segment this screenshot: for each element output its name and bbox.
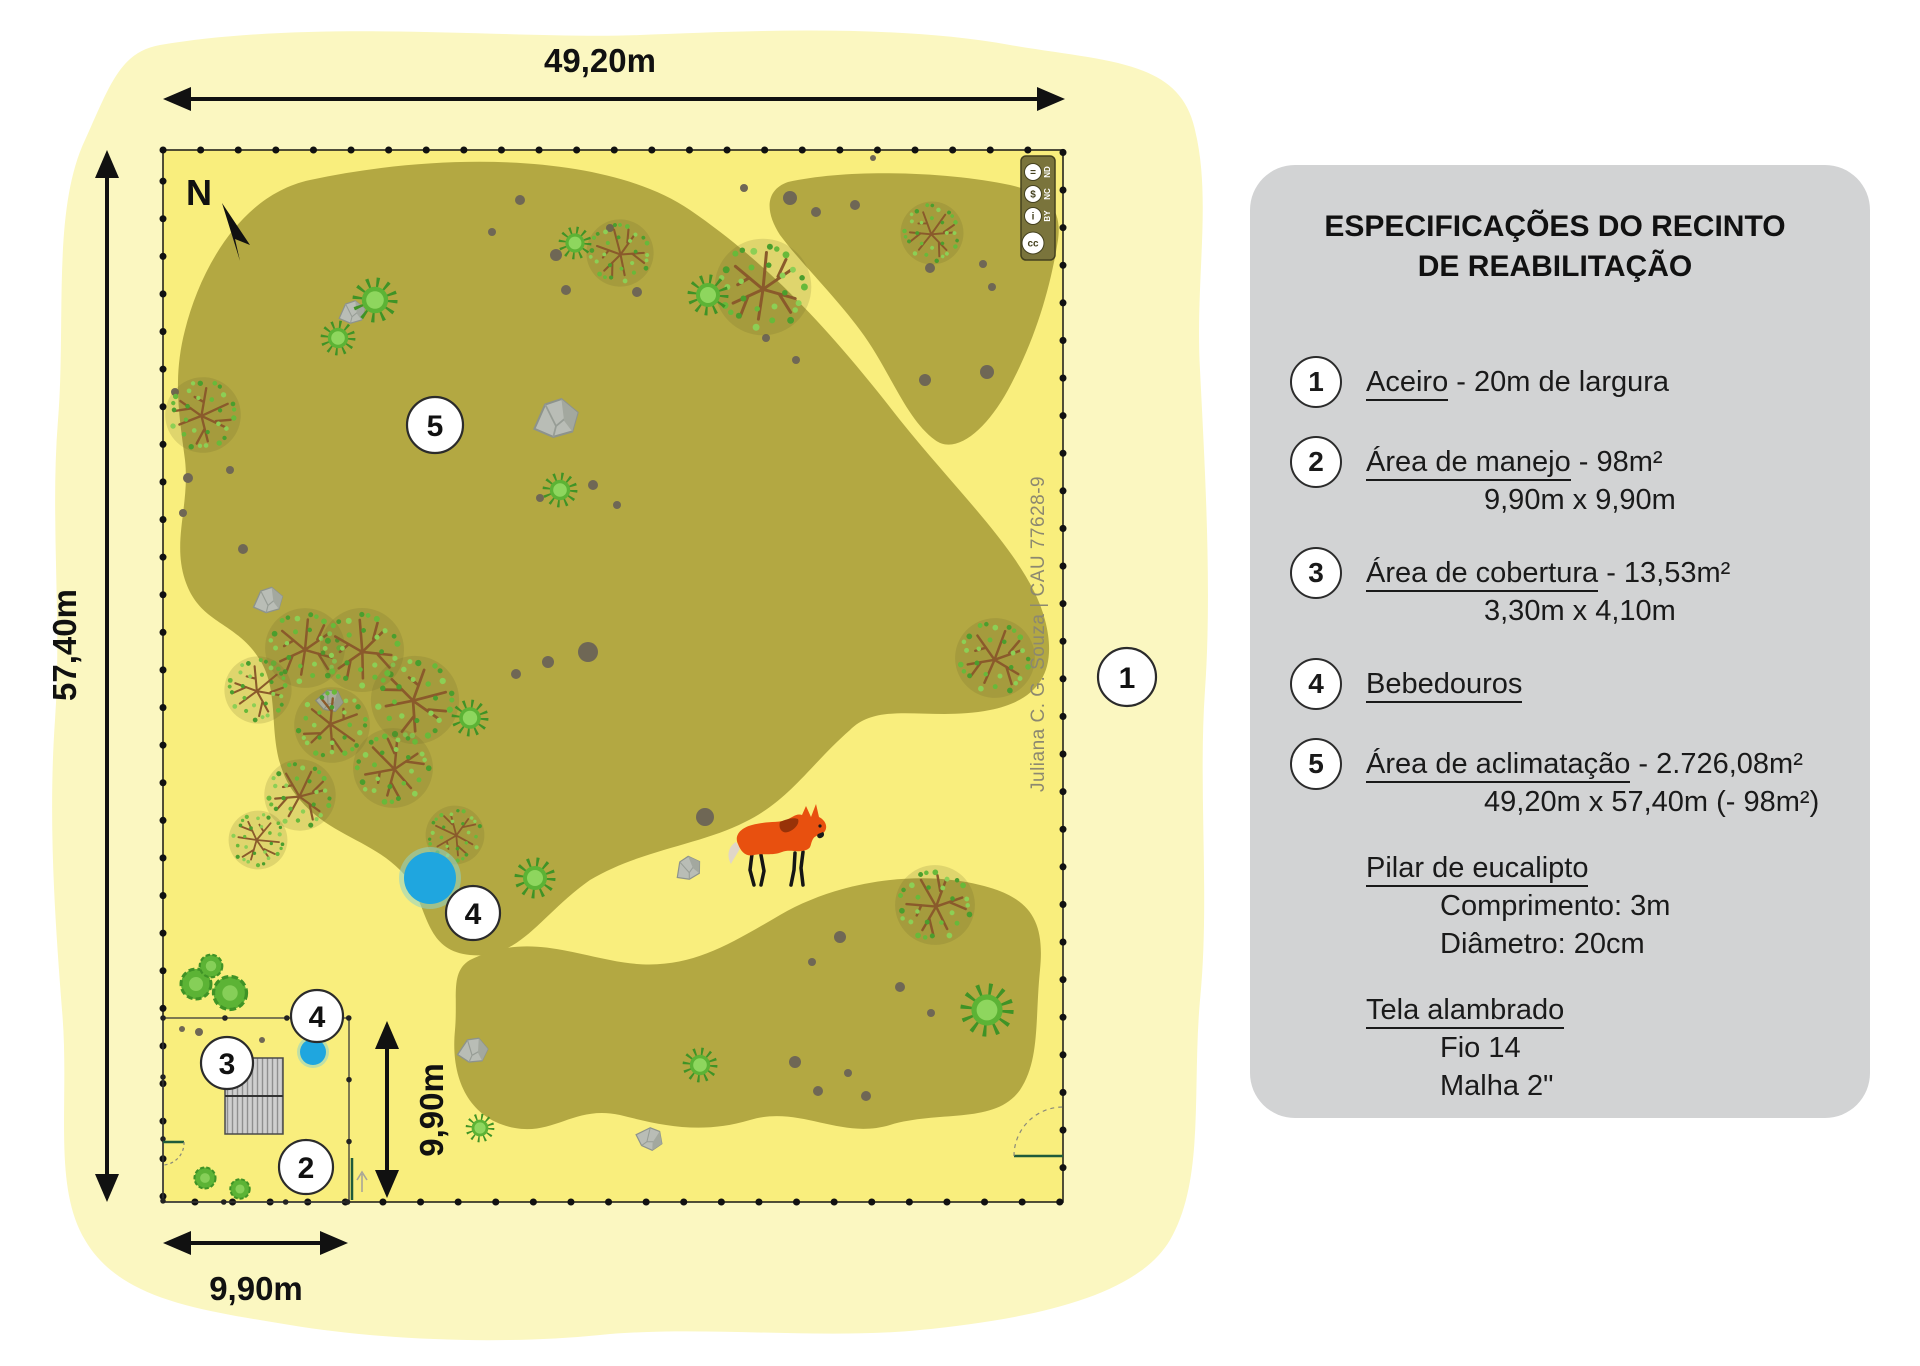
panel-title-line1: ESPECIFICAÇÕES DO RECINTO: [1266, 207, 1844, 247]
svg-text:4: 4: [465, 898, 482, 931]
spec-item-cobertura: 3 Área de cobertura - 13,53m² 3,30m x 4,…: [1266, 547, 1844, 630]
note-subline: Malha 2": [1440, 1067, 1844, 1105]
svg-text:NC: NC: [1043, 188, 1052, 200]
item-rest: - 20m de largura: [1448, 366, 1669, 398]
panel-title-line2: DE REABILITAÇÃO: [1266, 247, 1844, 287]
spec-item-manejo: 2 Área de manejo - 98m² 9,90m x 9,90m: [1266, 436, 1844, 519]
item-rest: - 98m²: [1571, 446, 1663, 478]
panel-title: ESPECIFICAÇÕES DO RECINTO DE REABILITAÇÃ…: [1266, 207, 1844, 286]
note-subline: Comprimento: 3m: [1440, 887, 1844, 925]
item-number-badge: 3: [1290, 547, 1342, 599]
svg-text:9,90m: 9,90m: [413, 1063, 450, 1157]
item-term: Área de manejo: [1366, 446, 1571, 481]
site-plan-page: 5 4 1 4 3 2 49,20m 57,40m 9,90m: [0, 0, 1920, 1366]
item-rest: - 2.726,08m²: [1630, 748, 1802, 780]
item-term: Bebedouros: [1366, 668, 1522, 703]
item-text: Área de aclimatação - 2.726,08m² 49,20m …: [1366, 738, 1819, 821]
map-marker-cobertura: 3: [201, 1037, 253, 1089]
item-text: Área de manejo - 98m² 9,90m x 9,90m: [1366, 436, 1676, 519]
item-text: Bebedouros: [1366, 658, 1522, 703]
svg-text:1: 1: [1119, 662, 1136, 695]
spec-item-bebedouros: 4 Bebedouros: [1266, 658, 1844, 710]
spec-panel: ESPECIFICAÇÕES DO RECINTO DE REABILITAÇÃ…: [1250, 165, 1870, 1118]
item-subline: 9,90m x 9,90m: [1484, 481, 1676, 519]
map-marker-aceiro: 1: [1098, 648, 1156, 706]
item-term: Área de aclimatação: [1366, 748, 1630, 783]
item-rest: - 13,53m²: [1598, 557, 1730, 589]
svg-text:BY: BY: [1043, 210, 1052, 222]
svg-text:9,90m: 9,90m: [209, 1270, 303, 1307]
note-term: Pilar de eucalipto: [1366, 852, 1588, 887]
enclosure-map: 5 4 1 4 3 2 49,20m 57,40m 9,90m: [0, 0, 1250, 1366]
spec-item-aceiro: 1 Aceiro - 20m de largura: [1266, 356, 1844, 408]
svg-text:3: 3: [219, 1048, 236, 1081]
item-number-badge: 4: [1290, 658, 1342, 710]
item-text: Aceiro - 20m de largura: [1366, 356, 1669, 401]
item-subline: 49,20m x 57,40m (- 98m²): [1484, 783, 1819, 821]
author-credit: Juliana C. G. Souza | CAU 77628-9: [1028, 476, 1049, 792]
note-subline: Diâmetro: 20cm: [1440, 925, 1844, 963]
note-subline: Fio 14: [1440, 1029, 1844, 1067]
svg-text:N: N: [186, 172, 212, 213]
item-number-badge: 5: [1290, 738, 1342, 790]
item-term: Área de cobertura: [1366, 557, 1598, 592]
spec-items: 1 Aceiro - 20m de largura 2 Área de mane…: [1266, 356, 1844, 1105]
svg-text:57,40m: 57,40m: [46, 589, 83, 701]
svg-text:$: $: [1030, 190, 1036, 201]
svg-text:2: 2: [298, 1152, 315, 1185]
map-marker-bebedouro-pond: 4: [446, 886, 500, 940]
spec-item-aclimatacao: 5 Área de aclimatação - 2.726,08m² 49,20…: [1266, 738, 1844, 821]
note-term: Tela alambrado: [1366, 994, 1564, 1029]
note-pilar: Pilar de eucalipto Comprimento: 3m Diâme…: [1366, 849, 1844, 963]
item-subline: 3,30m x 4,10m: [1484, 592, 1730, 630]
item-text: Área de cobertura - 13,53m² 3,30m x 4,10…: [1366, 547, 1730, 630]
item-number-badge: 1: [1290, 356, 1342, 408]
svg-text:4: 4: [309, 1001, 326, 1034]
svg-text:5: 5: [427, 410, 444, 443]
svg-text:cc: cc: [1027, 239, 1039, 250]
map-marker-manejo: 2: [279, 1140, 333, 1194]
note-tela: Tela alambrado Fio 14 Malha 2": [1366, 991, 1844, 1105]
map-marker-aclimatacao: 5: [407, 397, 463, 453]
map-marker-bebedouro-pen: 4: [291, 990, 343, 1042]
svg-text:49,20m: 49,20m: [544, 42, 656, 79]
svg-text:ND: ND: [1043, 166, 1052, 178]
item-number-badge: 2: [1290, 436, 1342, 488]
svg-text:i: i: [1032, 212, 1035, 223]
cc-license-badge: = $ i cc ND NC BY: [1021, 156, 1055, 260]
item-term: Aceiro: [1366, 366, 1448, 401]
svg-text:=: =: [1030, 168, 1036, 179]
